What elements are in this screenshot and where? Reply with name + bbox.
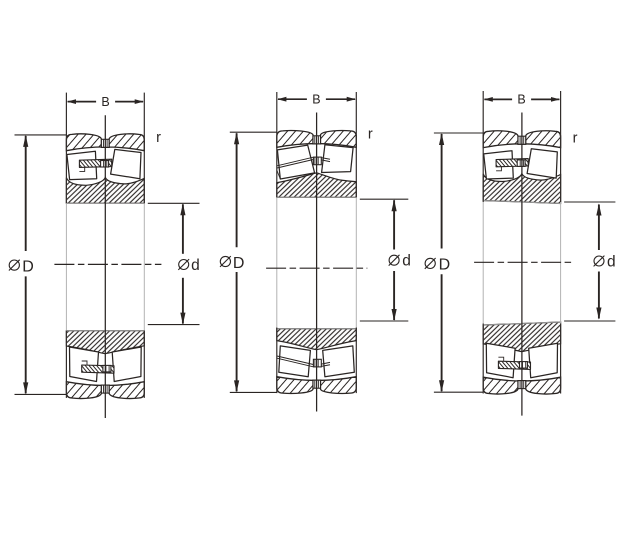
svg-text:D: D — [22, 258, 34, 275]
svg-text:D: D — [233, 255, 245, 272]
svg-text:d: d — [402, 253, 411, 270]
svg-text:r: r — [573, 131, 578, 147]
svg-text:B: B — [517, 93, 525, 107]
svg-text:r: r — [368, 127, 373, 143]
svg-text:D: D — [439, 257, 451, 274]
svg-text:r: r — [156, 130, 161, 146]
svg-text:B: B — [312, 93, 320, 107]
svg-text:d: d — [607, 253, 616, 270]
svg-text:d: d — [191, 257, 200, 274]
svg-text:B: B — [101, 95, 109, 109]
